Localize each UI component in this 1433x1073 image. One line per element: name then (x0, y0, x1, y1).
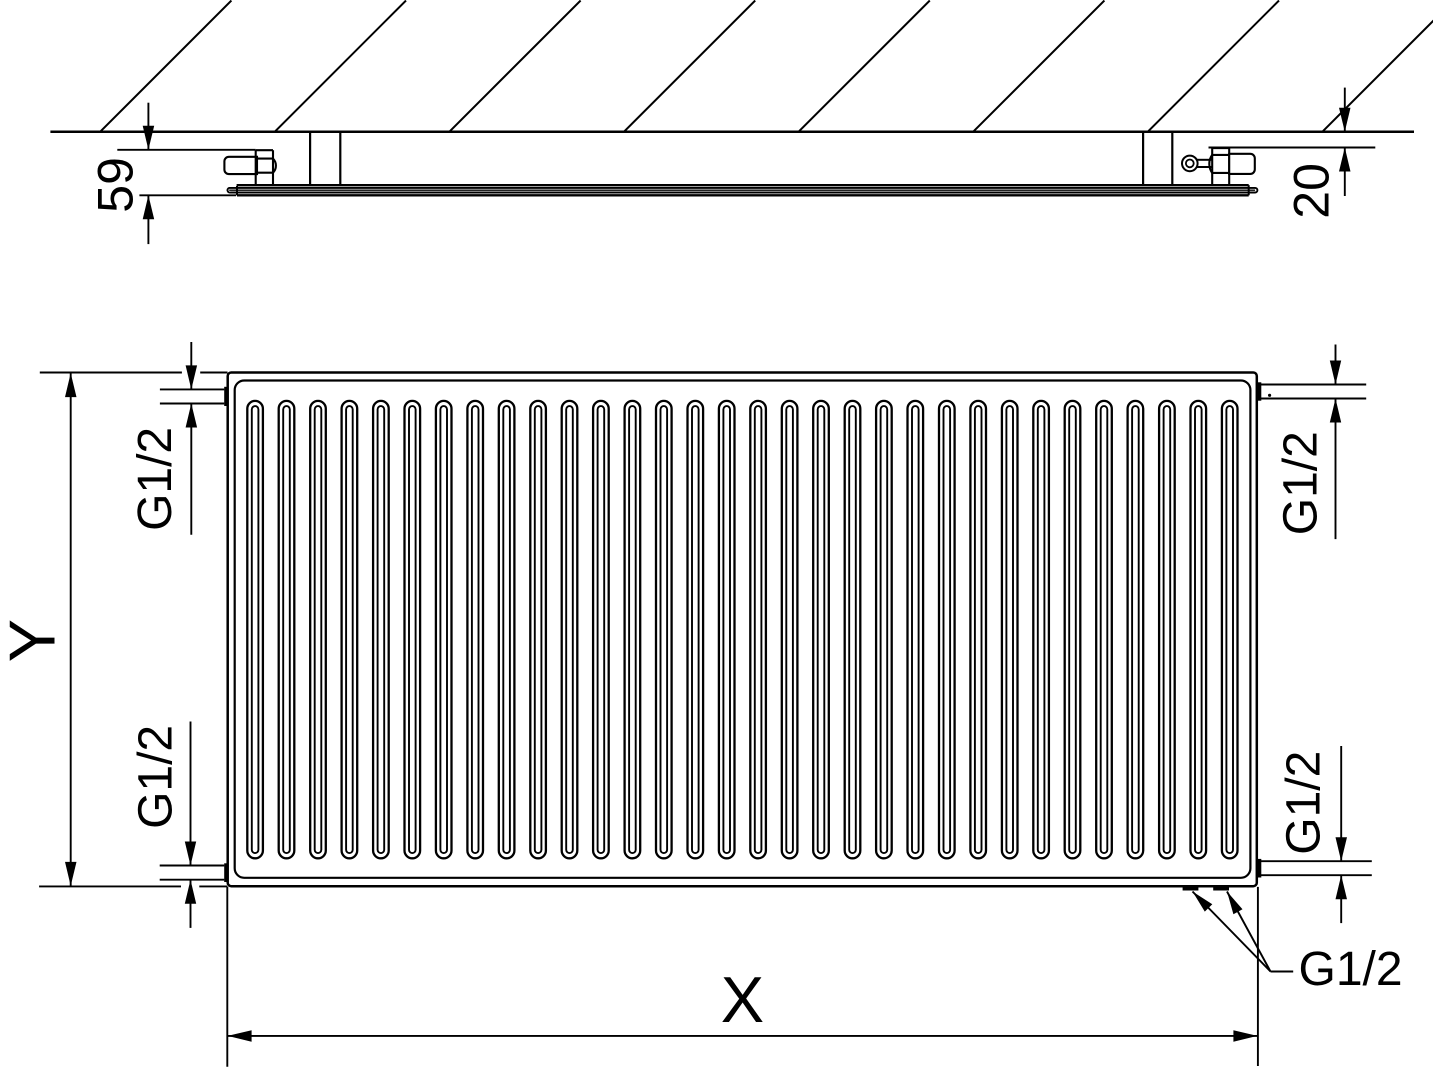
svg-text:20: 20 (1283, 163, 1339, 219)
svg-text:G1/2: G1/2 (1274, 431, 1327, 535)
svg-text:Y: Y (0, 619, 69, 662)
svg-text:G1/2: G1/2 (129, 427, 182, 531)
svg-text:X: X (721, 963, 764, 1036)
svg-text:G1/2: G1/2 (129, 725, 182, 829)
svg-text:59: 59 (88, 157, 144, 213)
svg-text:G1/2: G1/2 (1299, 943, 1403, 996)
svg-text:G1/2: G1/2 (1278, 751, 1331, 855)
